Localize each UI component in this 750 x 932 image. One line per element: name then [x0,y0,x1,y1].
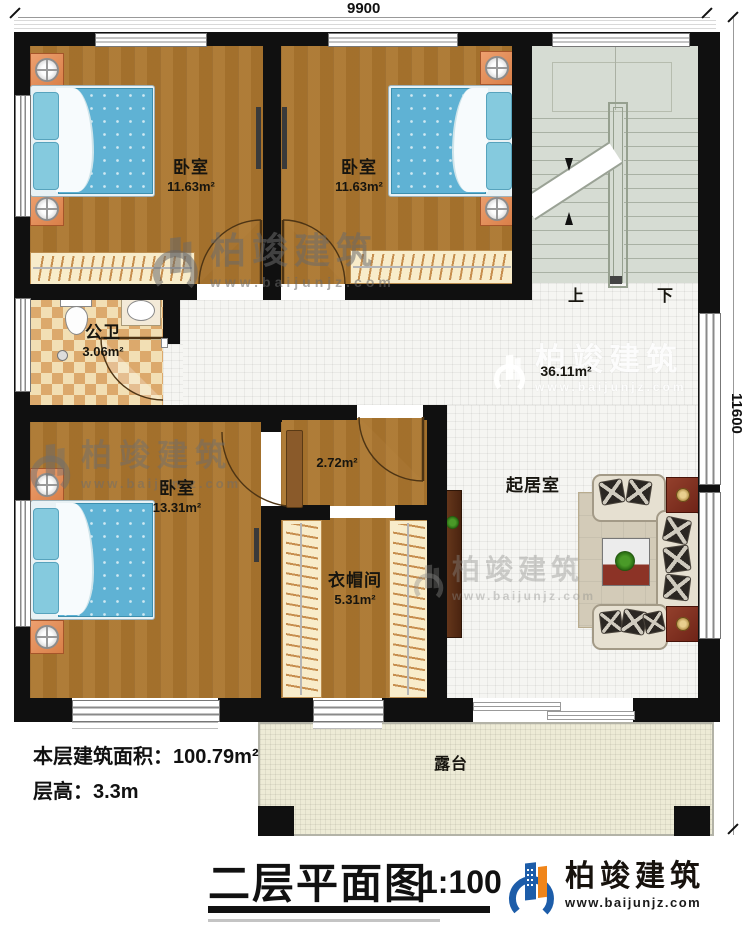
lamp-icon [35,197,59,221]
room-name: 卧室 [153,478,201,500]
pillow [486,92,512,140]
cushion [598,478,626,506]
window [328,33,458,47]
wardrobe [389,520,429,698]
room-area: 3.06m² [82,344,123,361]
window [699,313,721,485]
lamp-icon [485,56,509,80]
room-name: 衣帽间 [328,570,382,592]
wardrobe [282,520,322,698]
floor-area-value: 100.79m² [173,746,259,768]
wall-segment [261,422,281,432]
bathroom-threshold [163,344,183,405]
plant-icon [615,551,635,571]
lamp-icon [35,58,59,82]
room-label-terrace: 露台 [434,755,468,776]
dimension-line-top [18,17,710,18]
sliding-door-panel [547,711,635,720]
title-underline [208,906,490,913]
lamp-icon [485,197,509,221]
wall-segment [14,405,282,422]
room-area: 13.31m² [153,500,201,517]
plant-icon [446,516,459,529]
window [552,33,690,47]
room-area: 5.31m² [328,592,382,609]
stair-handrail [608,102,628,288]
table-medallion-icon [676,488,690,502]
floor-height-label: 层高： [33,781,93,803]
wall-segment [382,698,473,722]
wall-segment [345,284,532,300]
door-jamb [161,338,168,348]
dimension-top-value: 9900 [347,0,380,17]
wall-segment [263,46,281,300]
window-sill [313,722,382,729]
terrace-post [674,806,710,836]
wardrobe [30,252,195,285]
tv-icon [254,528,259,562]
table-medallion-icon [676,617,690,631]
pillow [33,92,59,140]
nightstand [30,620,64,654]
drawing-scale: 1:100 [420,864,502,901]
wardrobe-rail [300,523,302,695]
wall-segment [395,505,427,520]
cushion [599,610,624,635]
wall-segment [282,405,357,420]
cushion [642,610,666,635]
door-arc [222,432,286,506]
window [72,700,220,722]
cushion [662,544,691,573]
staircase [532,46,698,283]
brand-logo: 柏竣建筑 www.baijunjz.com [505,860,705,916]
wardrobe-rail [33,267,192,269]
room-area: 11.63m² [335,179,383,196]
wall-segment [423,405,447,420]
wall-segment [633,698,720,722]
floor-notes: 本层建筑面积：100.79m² 层高：3.3m [33,740,259,810]
window [699,492,721,639]
door-arc [283,220,345,284]
wardrobe [350,250,514,284]
wardrobe-rail [353,266,511,268]
dimension-right-value: 11600 [728,393,745,434]
cushion [625,478,652,505]
pillow [33,508,59,560]
brand-url: www.baijunjz.com [565,895,705,910]
floor-height-note: 层高：3.3m [33,775,259,810]
brand-logo-icon [505,860,557,916]
stair-direction-arrow [565,212,573,225]
floor-drain-icon [57,350,68,361]
wall-segment [427,420,447,700]
terrace-deck [258,722,714,836]
floor-height-value: 3.3m [93,781,139,803]
stair-down-label: 下 [657,282,673,306]
lamp-icon [35,473,59,497]
room-area: 2.72m² [316,455,357,472]
nightstand [30,53,64,87]
floor-plan-page: 9900 11600 上 下 [0,0,750,932]
door-arc [199,220,261,284]
window [15,95,31,217]
room-label-bedroom-2: 卧室 11.63m² [335,157,383,196]
wall-segment [163,296,180,344]
room-name: 起居室 [506,475,560,497]
room-area-living: 36.11m² [540,362,591,380]
window [95,33,207,47]
floor-area-label: 本层建筑面积： [33,746,173,768]
room-label-bathroom: 公卫 3.06m² [82,322,123,361]
brand-name: 柏竣建筑 [565,860,705,893]
room-label-hall: 2.72m² [316,455,357,472]
nightstand [30,192,64,226]
pillow [33,562,59,614]
stair-rail-cap [610,276,622,284]
room-name: 公卫 [82,322,123,344]
room-name: 卧室 [167,157,215,179]
cushion [662,516,693,546]
sliding-door-panel [473,702,561,711]
room-label-living: 起居室 [506,475,560,497]
room-area: 11.63m² [167,179,215,196]
page-title: 二层平面图 [208,850,428,911]
room-label-bedroom-3: 卧室 13.31m² [153,478,201,517]
nightstand [30,468,64,502]
side-table [666,477,700,513]
wall-segment [261,506,281,700]
door-arc [359,417,423,481]
wall-segment [218,698,313,722]
pillow [33,142,59,190]
stair-up-label: 上 [568,282,584,306]
room-name: 卧室 [335,157,383,179]
door-leaf [286,430,303,508]
eave-lines [14,20,716,31]
pillow [486,142,512,190]
stair-direction-arrow [565,158,573,171]
room-area: 36.11m² [540,362,591,380]
title-underline-thin [208,919,440,922]
window [15,298,31,392]
room-label-cloakroom: 衣帽间 5.31m² [328,570,382,609]
floor-area-note: 本层建筑面积：100.79m² [33,740,259,775]
side-table [666,606,700,642]
stair-treads-right [624,118,698,283]
tv-icon [256,107,261,169]
wardrobe-rail [407,523,409,695]
sink-icon [127,300,155,321]
nightstand [480,192,514,226]
room-name: 露台 [434,755,468,776]
window [313,700,384,722]
wall-segment [512,46,532,300]
tv-icon [282,107,287,169]
wall-segment [14,698,72,722]
nightstand [480,51,514,85]
lamp-icon [35,625,59,649]
room-label-bedroom-1: 卧室 11.63m² [167,157,215,196]
stair-center-line [615,46,616,110]
window [15,500,31,627]
window-sill [72,722,218,729]
terrace-post [258,806,294,836]
corridor-floor [180,300,700,405]
cushion [663,574,692,602]
